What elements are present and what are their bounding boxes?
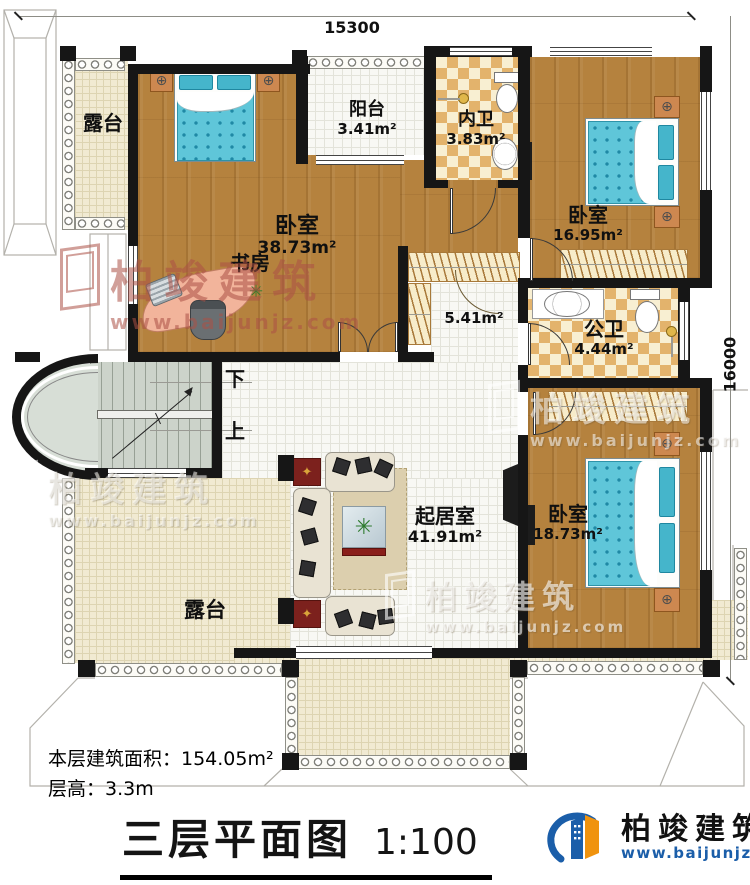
lamp-icon: ⊕ <box>156 74 168 88</box>
room-label-hallway: 5.41m² <box>428 310 520 327</box>
wall <box>128 64 310 74</box>
railing-post <box>120 46 136 61</box>
railing <box>62 478 75 664</box>
window <box>550 47 652 56</box>
brand-logo: 柏竣建筑 www.baijunjz.com <box>545 805 750 871</box>
wall <box>212 352 222 478</box>
room-name: 书房 <box>200 252 300 275</box>
wall <box>518 435 528 658</box>
brand-company-name: 柏竣建筑 <box>621 814 750 846</box>
railing <box>306 56 432 69</box>
door-leaf <box>338 322 341 352</box>
room-name: 露台 <box>150 598 260 622</box>
side-table: ✦ <box>293 600 321 628</box>
window <box>450 47 512 56</box>
window <box>316 155 404 165</box>
bay-window <box>12 354 98 480</box>
nightstand: ⊕ <box>654 96 680 118</box>
room-label-living-room: 起居室 41.91m² <box>385 505 505 546</box>
door-leaf <box>533 392 536 435</box>
plant-icon: ✳ <box>355 515 373 540</box>
stairs-up-label: 上 <box>222 420 248 443</box>
dimension-right-value: 16000 <box>721 327 740 403</box>
room-area: 4.44m² <box>545 341 663 358</box>
terrace-bottom-floor <box>75 478 290 663</box>
stairs-down-label: 下 <box>222 368 248 391</box>
wall <box>186 468 222 478</box>
room-area: 18.73m² <box>508 526 628 543</box>
label-text: 下 <box>222 368 248 391</box>
bed <box>174 70 256 162</box>
star-icon: ✦ <box>302 465 313 480</box>
wall-post <box>278 598 294 624</box>
wall-post <box>278 455 294 481</box>
room-name: 露台 <box>72 112 134 135</box>
railing-post <box>292 50 307 64</box>
toilet-bowl <box>496 84 518 113</box>
door-leaf <box>528 323 531 365</box>
sofa <box>325 596 395 636</box>
railing <box>734 548 747 660</box>
railing-post <box>282 660 299 677</box>
coffee-table-edge <box>342 548 386 556</box>
railing <box>95 663 282 677</box>
lamp-stem <box>671 337 673 357</box>
wall <box>700 570 712 658</box>
window <box>701 92 711 190</box>
wall <box>128 352 340 362</box>
coffee-table: ✳ <box>342 506 386 548</box>
railing-post <box>703 660 720 677</box>
star-icon: ✦ <box>302 607 313 622</box>
sofa <box>293 488 331 598</box>
railing-post <box>60 46 76 61</box>
window <box>128 246 138 304</box>
lamp-icon: ⊕ <box>661 100 673 114</box>
wall <box>234 648 296 658</box>
sofa <box>325 452 395 492</box>
railing-post <box>510 753 527 770</box>
railing <box>285 677 298 755</box>
nightstand: ⊕ <box>654 432 680 456</box>
wall <box>700 46 712 92</box>
drawing-title: 三层平面图 <box>122 806 352 867</box>
door-leaf <box>530 238 533 281</box>
terrace-protrusion-floor <box>298 658 510 756</box>
railing <box>75 58 125 71</box>
wall-lamp-icon <box>666 326 677 337</box>
floorplan-canvas: ⊕ ⊕ ✳ ⊕ ⊕ ✦ ✦ <box>0 0 750 885</box>
brand-logo-icon <box>545 805 611 871</box>
desk-chair <box>190 300 226 340</box>
side-table: ✦ <box>293 458 321 486</box>
terrace-top-floor <box>75 58 128 230</box>
nightstand: ⊕ <box>654 206 680 228</box>
label-text: 上 <box>222 420 248 443</box>
wall <box>700 388 712 452</box>
room-area: 5.41m² <box>428 310 520 327</box>
room-name: 内卫 <box>430 110 522 131</box>
floor-area-note: 本层建筑面积：154.05m² <box>48 744 274 771</box>
sliding-door <box>296 646 432 659</box>
room-name: 卧室 <box>508 503 628 526</box>
window <box>679 302 689 360</box>
window <box>701 452 711 570</box>
lamp-icon: ⊕ <box>661 210 673 224</box>
door-leaf <box>395 322 398 352</box>
wall <box>424 180 448 188</box>
railing <box>75 217 125 230</box>
wardrobe <box>560 249 688 279</box>
room-label-terrace-bottom: 露台 <box>150 598 260 622</box>
wall <box>128 64 138 246</box>
toilet <box>494 72 520 83</box>
floor-height-note: 层高：3.3m <box>48 774 154 801</box>
dimension-line-top <box>18 16 692 17</box>
room-label-bedroom-top-right: 卧室 16.95m² <box>528 204 648 244</box>
brand-website: www.baijunjz.com <box>621 846 750 862</box>
lamp-icon: ⊕ <box>661 437 673 451</box>
sink <box>544 291 590 317</box>
lamp-icon: ⊕ <box>263 74 275 88</box>
room-label-ensuite: 内卫 3.83m² <box>430 110 522 148</box>
railing <box>62 58 75 230</box>
railing-post <box>282 753 299 770</box>
desk-plant-icon: ✳ <box>246 282 266 302</box>
railing <box>512 677 525 755</box>
lamp-icon: ⊕ <box>661 593 673 607</box>
railing <box>527 661 703 675</box>
wall <box>398 352 434 362</box>
room-area: 3.83m² <box>430 131 522 148</box>
wall <box>432 648 522 658</box>
room-area: 41.91m² <box>385 528 505 546</box>
dimension-top-value: 15300 <box>312 18 392 37</box>
nightstand: ⊕ <box>654 588 680 612</box>
railing-post <box>78 660 95 677</box>
room-label-balcony: 阳台 3.41m² <box>322 100 412 138</box>
wall <box>518 382 528 392</box>
toilet <box>630 289 660 300</box>
window <box>108 468 186 478</box>
room-name: 卧室 <box>222 214 372 239</box>
bed <box>585 118 679 206</box>
railing <box>298 755 510 769</box>
wall <box>525 648 712 658</box>
drawing-scale: 1:100 <box>374 822 478 863</box>
wall <box>700 190 712 288</box>
room-name: 公卫 <box>545 318 663 341</box>
room-label-terrace-top: 露台 <box>72 112 134 135</box>
drawing-title-block: 三层平面图 1:100 <box>120 806 492 880</box>
room-label-study: 书房 <box>200 252 300 275</box>
room-area: 16.95m² <box>528 227 648 244</box>
wall <box>398 246 408 352</box>
room-area: 3.41m² <box>322 121 412 138</box>
railing-post <box>510 660 527 677</box>
wall <box>518 378 712 388</box>
lamp-stem <box>438 98 460 100</box>
door-leaf <box>450 188 453 234</box>
room-label-bedroom-bottom-right: 卧室 18.73m² <box>508 503 628 543</box>
wall <box>296 56 308 164</box>
room-name: 卧室 <box>528 204 648 227</box>
room-name: 起居室 <box>385 505 505 528</box>
room-label-shared-bath: 公卫 4.44m² <box>545 318 663 358</box>
room-name: 阳台 <box>322 100 412 121</box>
